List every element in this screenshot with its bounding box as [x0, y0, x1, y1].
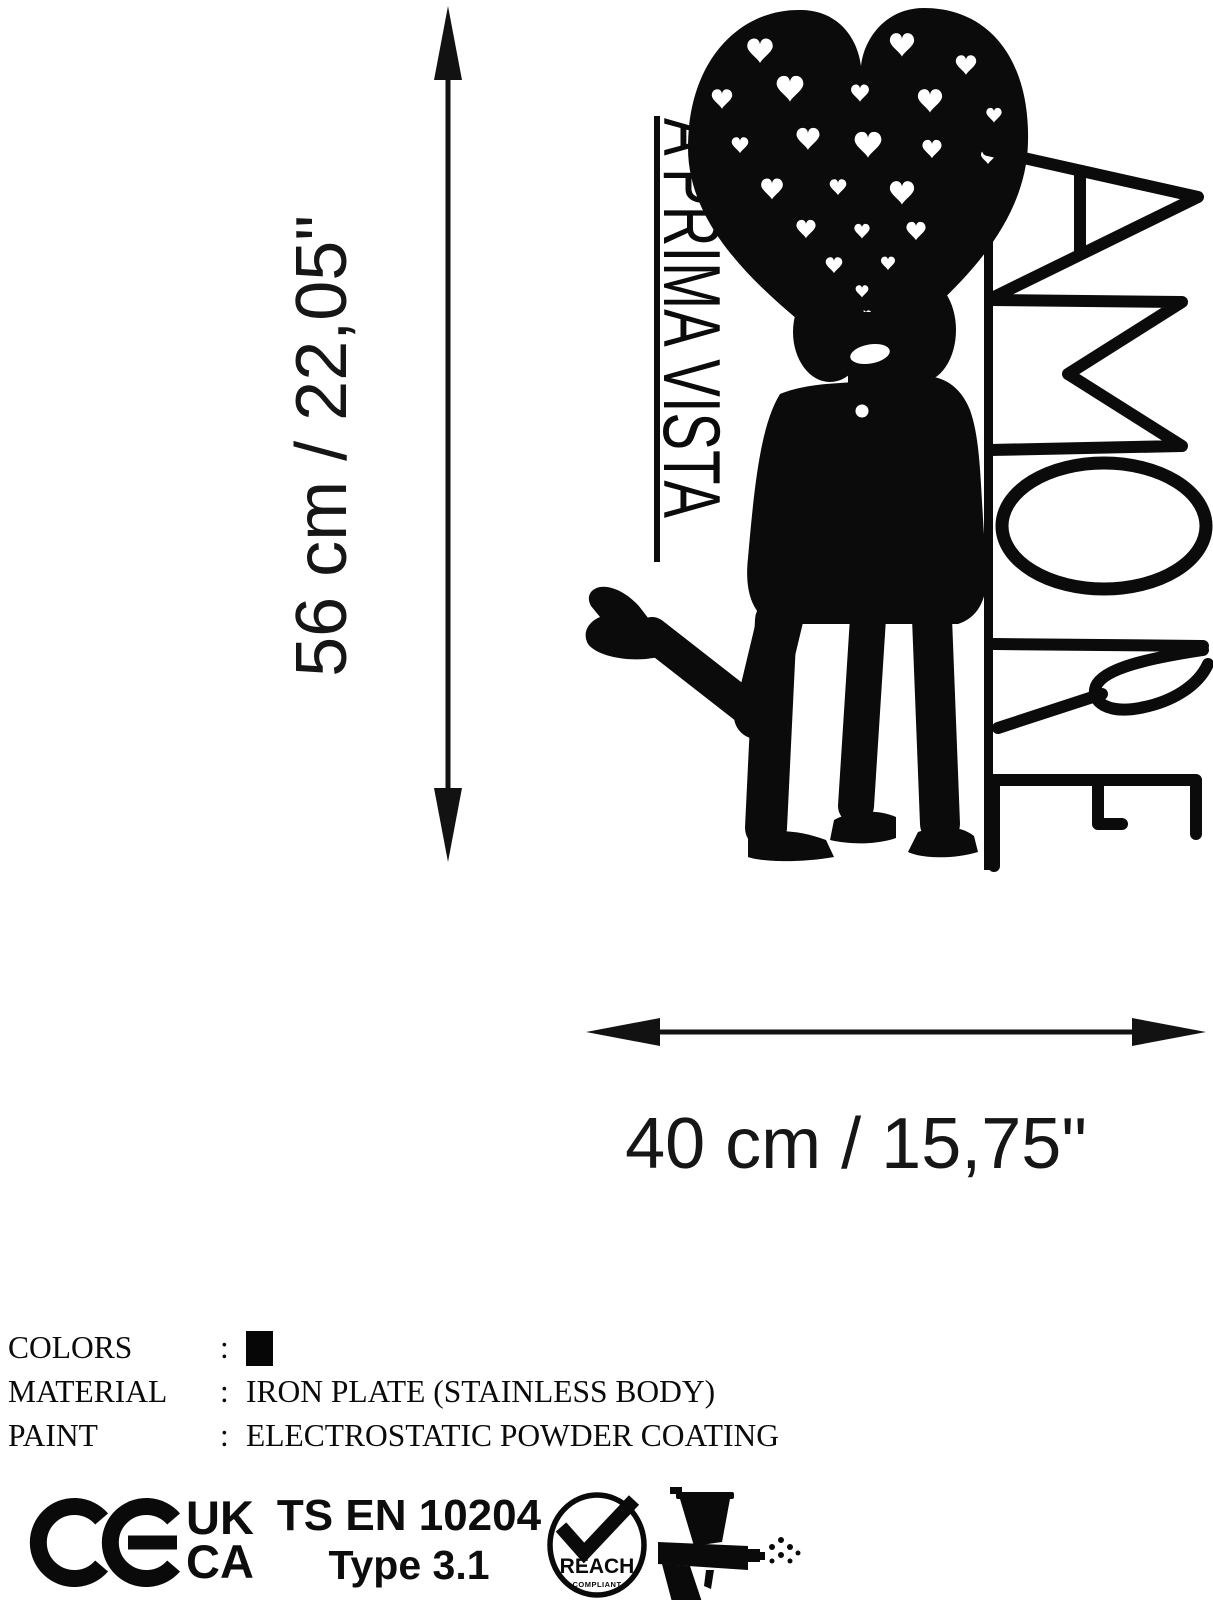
color-swatch [246, 1331, 273, 1366]
spec-row-paint: PAINT : ELECTROSTATIC POWDER COATING [8, 1414, 1008, 1458]
amore-letter-o [1002, 463, 1206, 589]
man-inner-leg [856, 618, 868, 806]
ce-letter-c [38, 1507, 101, 1579]
standard-line1: TS EN 10204 [274, 1491, 544, 1540]
spec-label: COLORS [8, 1326, 220, 1370]
amore-letter-r-bowl [1095, 650, 1208, 710]
wall-art-illustration: A PRIMA VISTA [586, 8, 1213, 870]
height-arrow-head-bottom [434, 788, 462, 862]
spec-row-colors: COLORS : [8, 1326, 1008, 1370]
spec-label: PAINT [8, 1414, 220, 1458]
height-dimension-arrow [434, 6, 462, 862]
spray-gun-lid [676, 1492, 734, 1499]
height-arrow-head-top [434, 6, 462, 80]
spec-value-paint: ELECTROSTATIC POWDER COATING [246, 1414, 1008, 1458]
spray-gun-cup [680, 1499, 730, 1546]
spec-colon: : [220, 1370, 246, 1414]
frame-line-right [984, 152, 993, 870]
reach-sublabel: COMPLIANT [572, 1580, 621, 1589]
woman-foot [748, 831, 834, 861]
amore-letter-e [990, 780, 1196, 866]
artwork-right-text: AMORE [988, 150, 1208, 866]
width-arrow-head-left [586, 1018, 660, 1046]
woman-standing-leg [766, 620, 776, 828]
amore-letter-m [990, 300, 1182, 450]
spray-gun-tip [760, 1552, 765, 1560]
standard-reference: TS EN 10204 Type 3.1 [274, 1491, 544, 1590]
spec-colon: : [220, 1414, 246, 1458]
man-outer-leg [932, 618, 940, 824]
spec-value-material: IRON PLATE (STAINLESS BODY) [246, 1370, 1008, 1414]
width-dimension-arrow [586, 1018, 1206, 1046]
spec-colon: : [220, 1326, 246, 1370]
product-dimension-diagram: A PRIMA VISTA [0, 0, 1213, 1600]
ce-mark-icon [38, 1507, 177, 1579]
spray-gun-icon [658, 1487, 801, 1600]
standard-line2: Type 3.1 [274, 1540, 544, 1590]
spec-row-material: MATERIAL : IRON PLATE (STAINLESS BODY) [8, 1370, 1008, 1414]
spray-dots [769, 1537, 801, 1564]
spray-gun-nozzle [748, 1549, 760, 1562]
height-dimension-label: 56 cm / 22,05" [276, 0, 368, 1036]
man-inner-foot [830, 812, 896, 844]
reach-label: REACH [560, 1555, 635, 1578]
spec-label: MATERIAL [8, 1370, 220, 1414]
width-dimension-label: 40 cm / 15,75" [556, 1098, 1156, 1190]
width-arrow-head-right [1132, 1018, 1206, 1046]
reach-compliant-icon: REACH COMPLIANT [550, 1495, 644, 1595]
product-specs: COLORS : MATERIAL : IRON PLATE (STAINLES… [8, 1326, 1008, 1458]
button-cutout [856, 405, 869, 418]
spray-gun-trigger [704, 1570, 714, 1589]
amore-letter-r-leg [998, 694, 1102, 728]
spray-gun-handle [662, 1564, 702, 1600]
spec-value-colors [246, 1326, 1008, 1370]
amore-letter-r-stem [994, 644, 1203, 646]
man-outer-foot [908, 827, 978, 857]
